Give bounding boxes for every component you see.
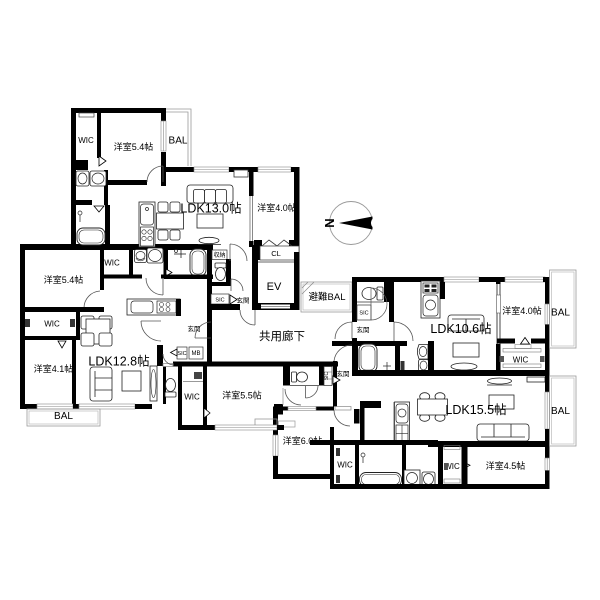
svg-text:洋室5.5帖: 洋室5.5帖 — [222, 390, 262, 401]
svg-text:WIC: WIC — [104, 259, 120, 268]
svg-text:SIC: SIC — [177, 351, 186, 357]
svg-text:BAL: BAL — [169, 136, 188, 147]
svg-text:避難BAL: 避難BAL — [309, 291, 346, 303]
svg-text:洋室5.4帖: 洋室5.4帖 — [44, 274, 84, 285]
svg-text:SIC: SIC — [359, 311, 368, 317]
svg-text:SIC: SIC — [324, 371, 330, 380]
svg-text:洋室4.5帖: 洋室4.5帖 — [486, 460, 526, 471]
svg-text:BAL: BAL — [54, 411, 73, 422]
svg-text:洋室5.4帖: 洋室5.4帖 — [114, 141, 154, 152]
svg-text:LDK12.8帖: LDK12.8帖 — [88, 354, 149, 369]
svg-text:WIC: WIC — [337, 461, 353, 470]
svg-text:LDK10.6帖: LDK10.6帖 — [430, 321, 491, 336]
svg-text:共用廊下: 共用廊下 — [259, 329, 305, 343]
svg-text:洋室4.0帖: 洋室4.0帖 — [257, 202, 297, 213]
svg-text:BAL: BAL — [551, 406, 570, 417]
svg-text:SIC: SIC — [215, 298, 224, 304]
svg-text:洋室6.0帖: 洋室6.0帖 — [283, 435, 323, 446]
svg-text:N: N — [322, 218, 337, 227]
svg-text:玄関: 玄関 — [357, 325, 370, 334]
svg-text:洋室4.0帖: 洋室4.0帖 — [502, 305, 542, 316]
svg-text:WIC: WIC — [184, 393, 200, 402]
svg-text:MB: MB — [192, 351, 201, 357]
svg-text:EV: EV — [267, 281, 282, 293]
svg-text:LDK13.0帖: LDK13.0帖 — [180, 201, 241, 216]
svg-text:WIC: WIC — [44, 320, 60, 329]
svg-text:WIC: WIC — [78, 136, 94, 145]
svg-text:収納: 収納 — [213, 251, 225, 259]
svg-text:玄関: 玄関 — [337, 369, 350, 378]
svg-text:玄関: 玄関 — [237, 296, 250, 305]
svg-text:BAL: BAL — [551, 308, 570, 319]
svg-text:CL: CL — [271, 249, 281, 258]
svg-text:洋室4.1帖: 洋室4.1帖 — [34, 363, 74, 374]
svg-text:WIC: WIC — [513, 356, 529, 365]
svg-text:LDK15.5帖: LDK15.5帖 — [445, 402, 506, 417]
